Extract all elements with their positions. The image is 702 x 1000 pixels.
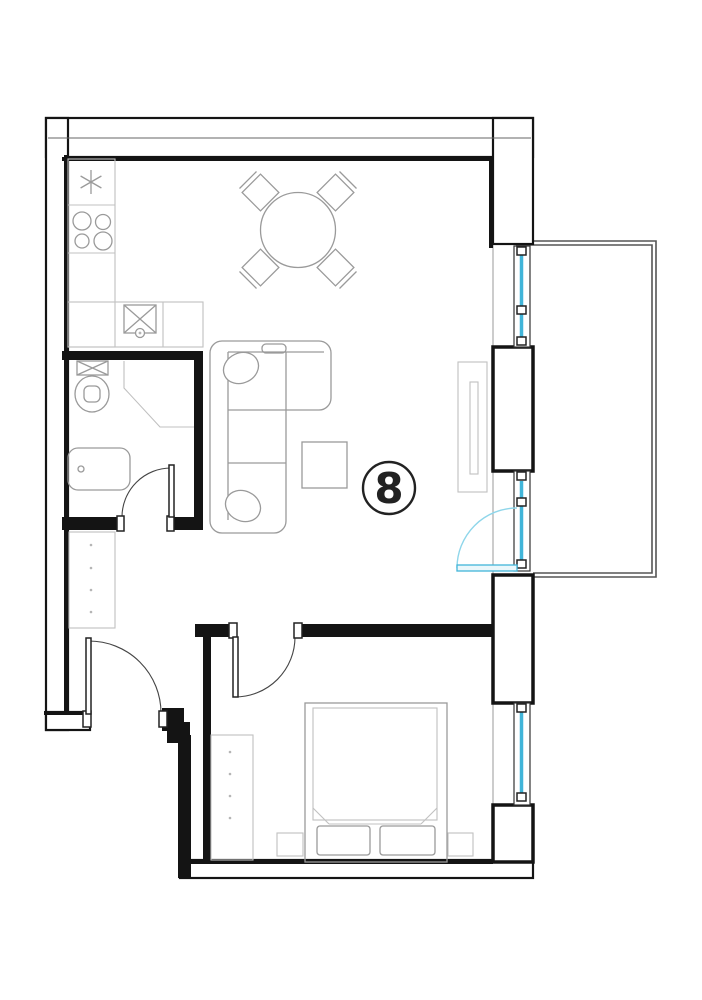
bedroom-wall-left-lower <box>178 735 191 878</box>
entry-door <box>83 638 167 727</box>
kitchen <box>68 159 203 347</box>
hall-closet <box>69 532 115 628</box>
dining-set <box>240 172 357 289</box>
bed-pillow-left <box>317 826 370 855</box>
window-living-room <box>514 246 530 347</box>
hob-burner <box>94 232 112 250</box>
floor-plan-page: 8 <box>0 0 702 1000</box>
bedroom <box>211 703 473 862</box>
unit-number: 8 <box>374 464 403 513</box>
wall-right-upper <box>493 118 533 244</box>
bed-sheet-fold <box>313 808 437 824</box>
bedroom-door <box>229 623 302 697</box>
wall-pier-3 <box>493 805 533 862</box>
kitchen-counter-bottom <box>68 302 203 347</box>
door-jamb <box>167 516 174 531</box>
bedroom-door-swing-arc <box>235 637 295 697</box>
fridge-star-icon <box>81 170 102 194</box>
wardrobe <box>211 735 253 860</box>
nightstand-left <box>277 833 303 856</box>
balcony-inner-line <box>516 245 652 573</box>
hob-burner <box>96 215 111 230</box>
sofa <box>210 341 331 533</box>
bathroom <box>68 361 194 490</box>
bedroom-door-leaf <box>233 637 238 697</box>
hob-icon <box>73 212 112 250</box>
toilet-icon <box>75 361 109 412</box>
door-jamb <box>294 623 302 638</box>
balcony <box>516 241 656 577</box>
bathroom-wall-bottom-left <box>62 517 123 530</box>
bathroom-door-leaf <box>169 465 174 517</box>
balcony-outer-line <box>516 241 656 577</box>
dining-table <box>261 193 336 268</box>
bed-pillow-right <box>380 826 435 855</box>
washbasin-tap <box>78 466 84 472</box>
bed-mattress <box>313 708 437 820</box>
nightstand-right <box>448 833 473 856</box>
entry-door-leaf <box>86 638 91 714</box>
floor-edge-lines <box>493 140 513 860</box>
hob-burner <box>73 212 91 230</box>
unit-badge: 8 <box>363 462 415 514</box>
closet-body <box>69 532 115 628</box>
bed-frame <box>305 703 447 862</box>
wall-pier-1 <box>493 347 533 471</box>
window-bedroom <box>514 703 530 805</box>
hob-burner <box>75 234 89 248</box>
coffee-table <box>302 442 347 488</box>
kitchen-sink-icon <box>124 305 156 338</box>
balcony-door-leaf <box>457 565 517 571</box>
bathroom-door <box>117 465 174 531</box>
shower-boundary <box>124 361 194 427</box>
floor-plan-drawing: 8 <box>0 0 702 1000</box>
bathroom-wall-top <box>62 351 203 360</box>
washbasin-body <box>68 448 130 490</box>
wardrobe-body <box>211 735 253 860</box>
door-jamb <box>159 711 167 727</box>
toilet-cistern-cross <box>77 361 108 375</box>
bathroom-wall-right <box>194 351 203 530</box>
bathroom-wall-bottom-right <box>171 517 203 530</box>
bedroom-wall-top-right <box>300 624 493 637</box>
radiator-slot <box>470 382 478 474</box>
balcony-door-swing-arc <box>457 508 517 568</box>
door-jamb <box>117 516 124 531</box>
bedroom-wall-left <box>203 637 211 862</box>
door-jamb <box>229 623 237 638</box>
double-bed <box>277 703 473 862</box>
entry-door-swing-arc <box>89 641 161 713</box>
sink-tap-dot <box>139 332 142 335</box>
washbasin-icon <box>68 448 130 490</box>
radiator <box>458 362 487 492</box>
toilet-bowl <box>75 376 109 412</box>
wall-pier-2 <box>493 575 533 703</box>
